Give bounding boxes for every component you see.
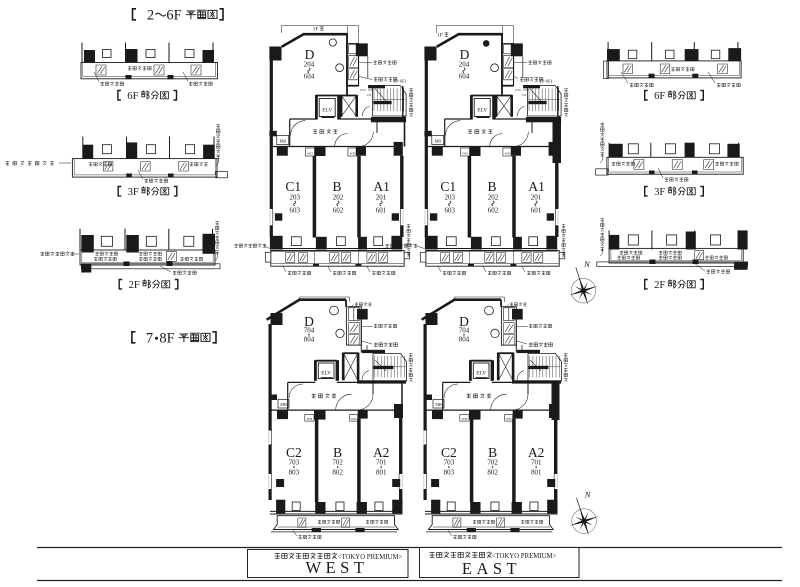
svg-text:203: 203 [289,194,300,202]
svg-text:803: 803 [289,468,300,476]
svg-text:8F: 8F [159,330,174,346]
svg-text:WEST: WEST [306,558,369,577]
svg-text:2F: 2F [654,280,665,291]
svg-text:B: B [487,179,496,194]
svg-text:702: 702 [487,459,498,467]
svg-text:701: 701 [531,459,542,467]
svg-text:6F: 6F [127,91,138,102]
svg-text:(3~6F): (3~6F) [394,78,407,83]
svg-text:2: 2 [147,7,154,23]
svg-text:1F: 1F [313,27,319,33]
svg-text:802: 802 [487,468,498,476]
svg-text:CW: CW [367,94,372,97]
svg-text:801: 801 [376,468,387,476]
svg-text:WD: WD [462,152,468,156]
svg-text:3F: 3F [128,187,139,198]
svg-text:204: 204 [459,61,470,69]
svg-text:6F: 6F [166,7,181,23]
svg-text:601: 601 [531,206,542,214]
svg-text:MB: MB [280,139,287,144]
svg-text:801: 801 [531,468,542,476]
svg-text:6F: 6F [654,91,665,102]
svg-text:804: 804 [304,335,315,343]
svg-text:3F: 3F [654,187,665,198]
svg-text:B: B [332,179,341,194]
svg-text:701: 701 [376,459,387,467]
svg-text:7: 7 [146,330,153,346]
svg-text:C1: C1 [440,179,456,194]
svg-text:WD: WD [307,417,313,421]
svg-text:204: 204 [304,61,315,69]
svg-text:ELV: ELV [477,108,487,114]
svg-text:202: 202 [333,194,344,202]
svg-text:MB: MB [435,402,442,407]
svg-text:A1: A1 [528,179,545,194]
svg-text:WD: WD [351,417,357,421]
svg-text:202: 202 [488,194,499,202]
svg-text:A1: A1 [373,179,390,194]
svg-text:MB: MB [280,402,287,407]
svg-text:601: 601 [376,206,387,214]
svg-text:704: 704 [459,326,470,334]
svg-text:ELV: ELV [321,371,331,377]
svg-text:201: 201 [376,194,387,202]
svg-text:602: 602 [488,206,499,214]
svg-text:201: 201 [531,194,542,202]
svg-text:603: 603 [289,206,300,214]
svg-text:602: 602 [333,206,344,214]
svg-text:EAST: EAST [462,559,521,578]
svg-text:804: 804 [459,335,470,343]
svg-text:703: 703 [444,459,455,467]
svg-text:WD: WD [462,417,468,421]
svg-text:C1: C1 [285,179,301,194]
svg-text:702: 702 [332,459,343,467]
svg-text:604: 604 [459,73,470,81]
svg-text:703: 703 [289,459,300,467]
svg-text:WD: WD [350,152,356,156]
svg-text:ELV: ELV [322,108,332,114]
svg-text:1F: 1F [437,33,443,39]
svg-text:803: 803 [444,468,455,476]
svg-text:WD: WD [505,152,511,156]
svg-text:603: 603 [444,206,455,214]
svg-text:MB: MB [435,139,442,144]
svg-text:(3~6F): (3~6F) [540,78,553,83]
svg-text:ELV: ELV [476,371,486,377]
svg-text:203: 203 [444,194,455,202]
svg-text:2F: 2F [129,280,140,291]
svg-text:WD: WD [506,417,512,421]
svg-text:802: 802 [332,468,343,476]
svg-text:WD: WD [307,152,313,156]
svg-text:704: 704 [304,326,315,334]
svg-text:CW: CW [522,94,527,97]
svg-text:604: 604 [304,73,315,81]
